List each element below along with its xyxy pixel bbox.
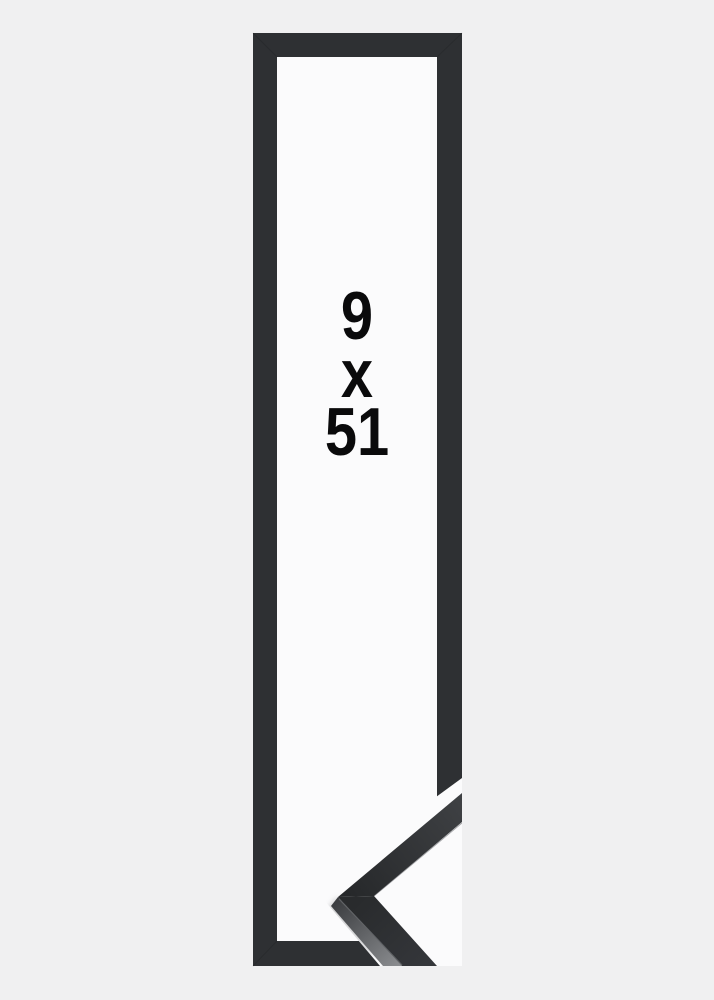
size-height-value: 51 [325, 403, 389, 461]
product-image: 9 x 51 [0, 0, 714, 1000]
size-label: 9 x 51 [325, 287, 389, 461]
frame-illustration [0, 0, 714, 1000]
frame-opening [277, 57, 437, 941]
